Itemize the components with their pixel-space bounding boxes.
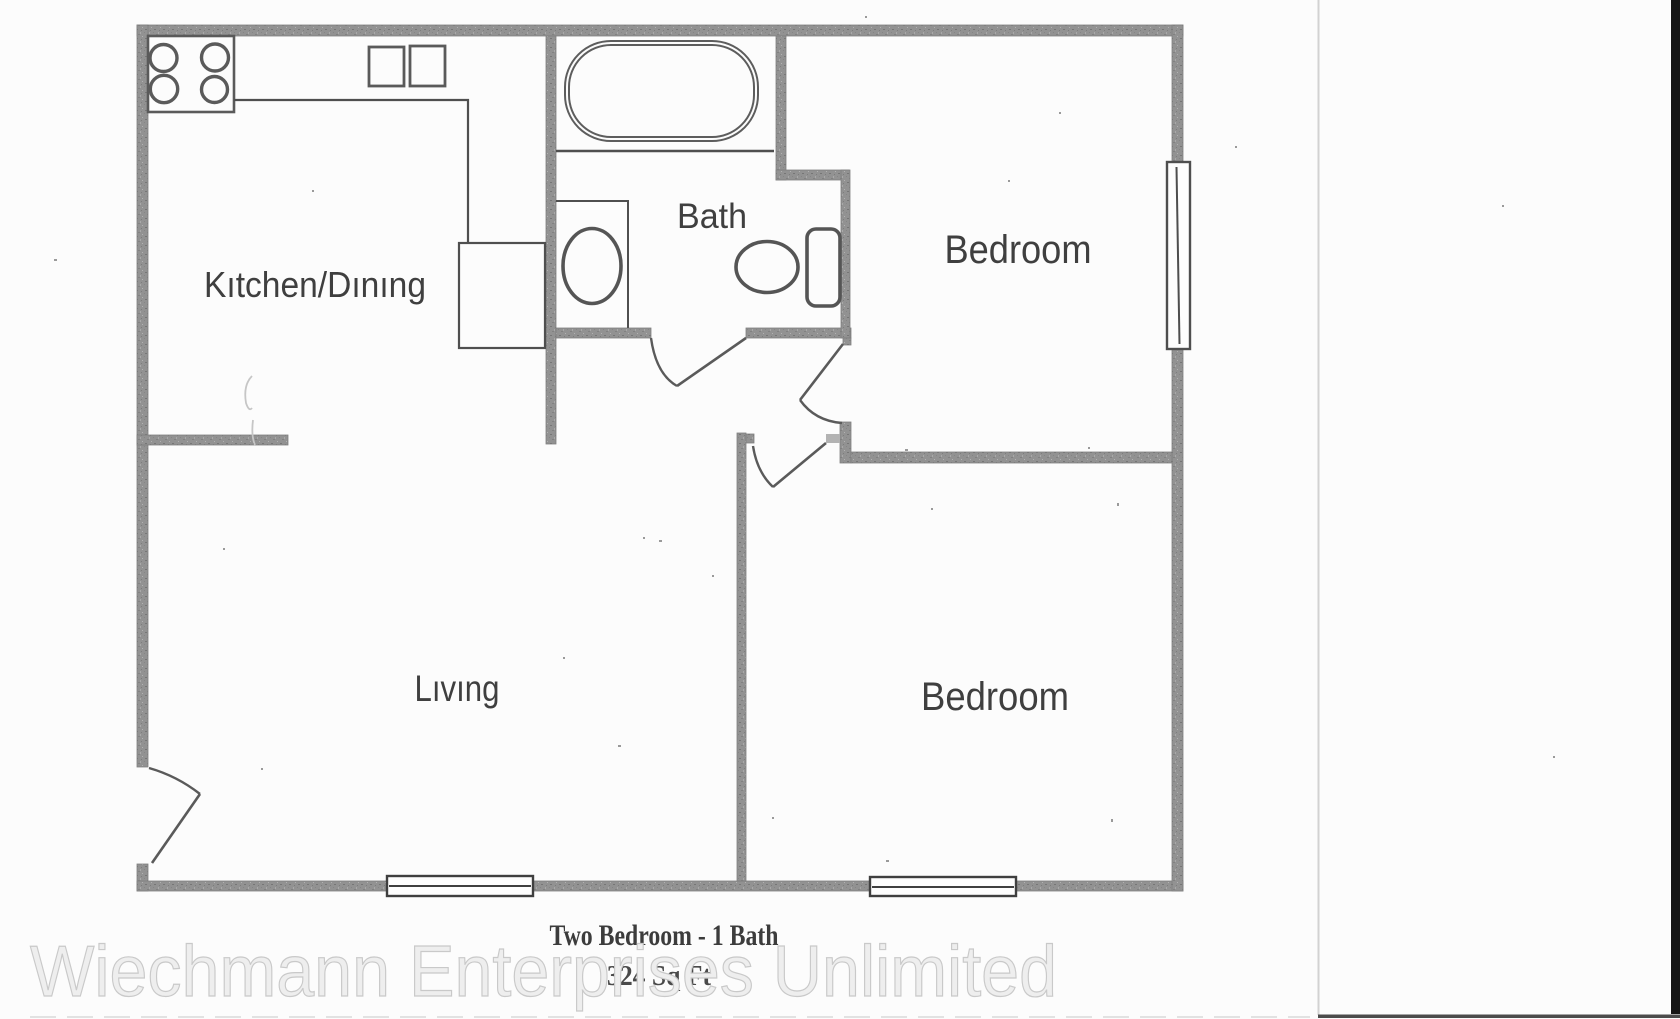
svg-text:Bath: Bath xyxy=(677,197,747,236)
svg-text:Bedroom: Bedroom xyxy=(945,228,1092,272)
svg-text:Kıtchen/Dınıng: Kıtchen/Dınıng xyxy=(204,264,426,305)
svg-text:Bedroom: Bedroom xyxy=(921,675,1069,719)
svg-text:Wiechmann Enterprises Unlimite: Wiechmann Enterprises Unlimited xyxy=(30,932,1057,1012)
svg-text:Lıvıng: Lıvıng xyxy=(415,668,500,709)
